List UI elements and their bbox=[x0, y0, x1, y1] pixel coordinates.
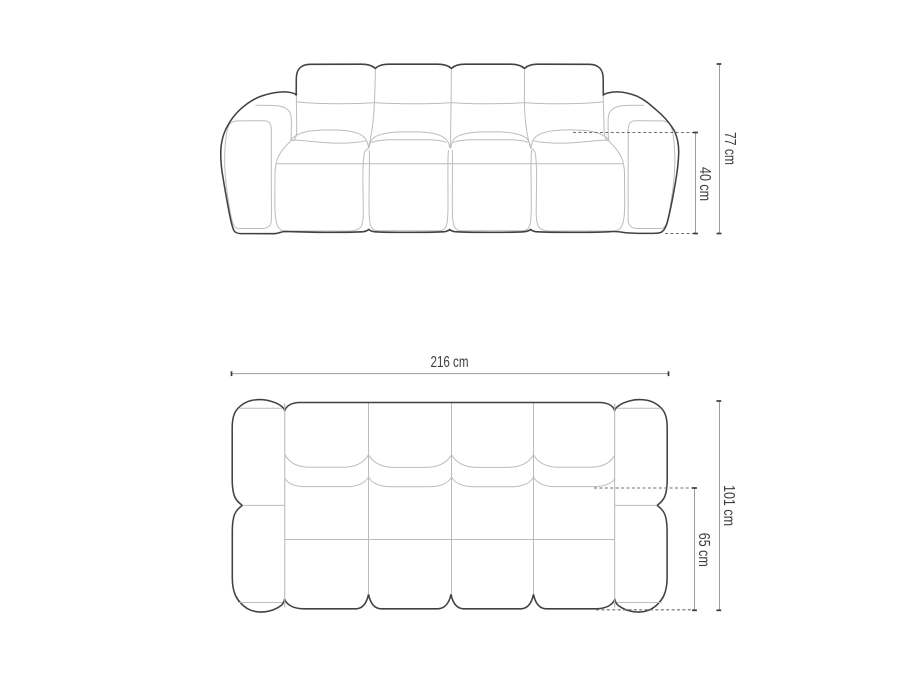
svg-text:216 cm: 216 cm bbox=[431, 354, 469, 371]
svg-text:40 cm: 40 cm bbox=[696, 167, 713, 201]
svg-text:77 cm: 77 cm bbox=[721, 132, 738, 165]
svg-text:65 cm: 65 cm bbox=[695, 533, 712, 567]
svg-text:101 cm: 101 cm bbox=[720, 485, 737, 526]
